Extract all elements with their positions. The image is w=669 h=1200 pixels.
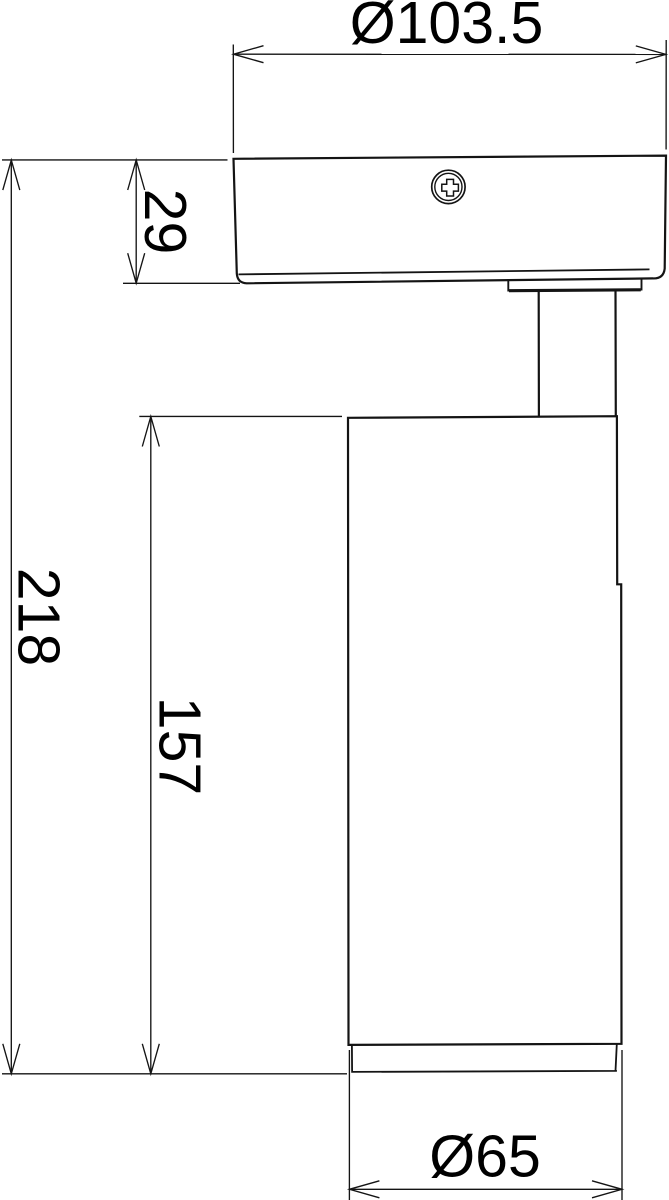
svg-text:218: 218: [5, 568, 71, 666]
svg-text:157: 157: [146, 697, 212, 795]
svg-text:Ø103.5: Ø103.5: [350, 0, 544, 56]
svg-text:29: 29: [132, 189, 198, 255]
svg-text:Ø65: Ø65: [429, 1124, 541, 1190]
